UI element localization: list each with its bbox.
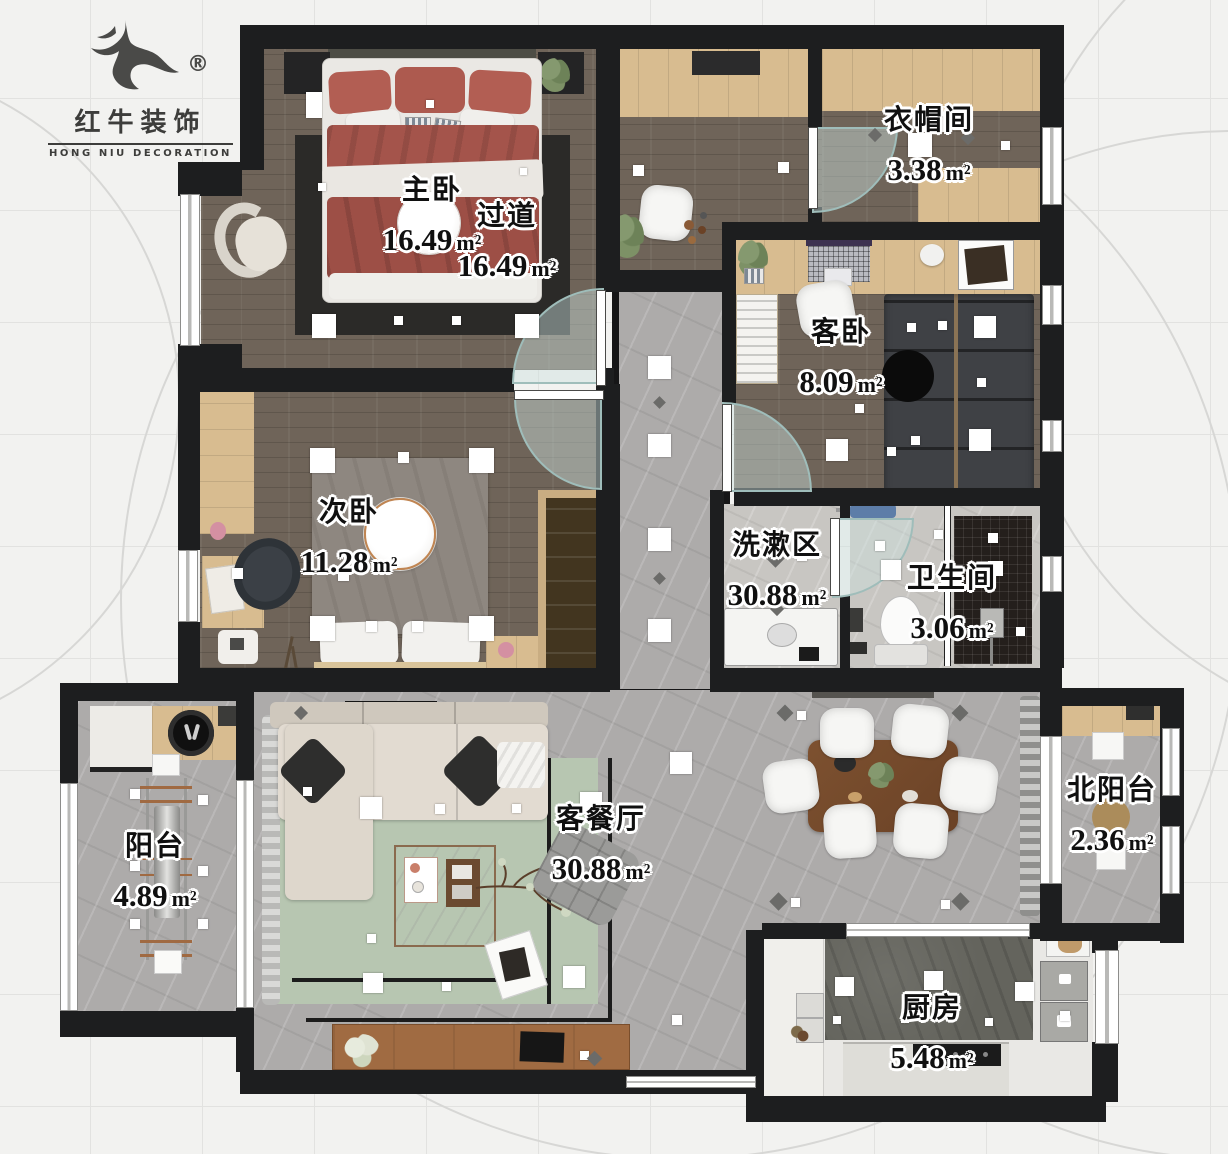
downlight <box>412 621 423 632</box>
door-leaf <box>808 127 818 209</box>
stove-knob <box>983 1052 988 1057</box>
room-area: 16.49m² <box>458 248 557 284</box>
downlight <box>435 804 445 814</box>
makeup-item <box>698 226 706 234</box>
box-item <box>452 865 472 879</box>
wardrobe-interior <box>546 498 596 678</box>
downlight <box>515 314 539 338</box>
downlight <box>198 919 208 929</box>
tv <box>519 1031 564 1063</box>
downlight <box>198 866 208 876</box>
downlight <box>312 314 336 338</box>
wall <box>596 49 620 289</box>
wall <box>60 683 78 783</box>
wall <box>236 700 254 780</box>
registered-mark: ® <box>187 52 209 77</box>
sink-unit <box>1040 1002 1088 1042</box>
downlight <box>974 316 996 338</box>
round-pillow <box>882 350 934 402</box>
wall <box>240 25 1062 49</box>
wall <box>178 392 200 550</box>
room-name: 卫生间 <box>907 556 997 596</box>
downlight <box>672 1015 682 1025</box>
downlight <box>977 378 986 387</box>
brand-logo: ® 红牛装饰 HONG NIU DECORATION <box>48 16 233 159</box>
downlight <box>398 452 409 463</box>
storage-box <box>154 950 182 974</box>
sink <box>767 623 797 647</box>
wall <box>178 344 242 370</box>
side-table <box>218 630 258 664</box>
room-area: 8.09m² <box>799 364 882 400</box>
shelf-item <box>1126 704 1154 720</box>
dining-chair <box>938 754 1001 815</box>
window <box>1040 736 1062 884</box>
wall <box>236 1008 254 1072</box>
door-leaf <box>722 404 732 492</box>
window <box>1042 285 1062 325</box>
downlight <box>941 900 950 909</box>
downlight <box>934 530 943 539</box>
tv-panel <box>692 51 760 75</box>
bull-logo-icon <box>81 16 201 100</box>
drying-bar <box>140 786 192 789</box>
photo-frame <box>958 240 1014 290</box>
box-item <box>452 885 472 899</box>
table-plant <box>868 762 894 788</box>
downlight <box>875 541 885 551</box>
dining-chair <box>889 702 950 760</box>
dining-chair <box>820 708 874 758</box>
window <box>1095 950 1119 1044</box>
wall <box>1160 688 1184 943</box>
dining-chair <box>892 802 951 861</box>
brand-name-en: HONG NIU DECORATION <box>48 148 233 159</box>
downlight <box>469 616 494 641</box>
window <box>1042 420 1062 452</box>
room-area: 4.89m² <box>113 878 196 914</box>
kitchen-plant <box>788 1022 818 1050</box>
window <box>180 194 200 346</box>
downlight <box>367 934 376 943</box>
room-name: 阳台 <box>113 824 196 864</box>
downlight <box>833 1016 841 1024</box>
downlight <box>648 528 671 551</box>
downlight <box>1060 1011 1070 1021</box>
wall <box>710 668 1062 692</box>
bookshelf <box>736 294 778 384</box>
downlight <box>985 1018 993 1026</box>
window <box>236 780 254 1008</box>
downlight <box>232 568 243 579</box>
wall <box>746 1096 1106 1122</box>
dining-chair <box>822 802 878 859</box>
wall <box>746 930 764 1120</box>
room-label-balcony: 阳台 4.89m² <box>113 824 196 914</box>
window <box>846 923 1030 937</box>
wall <box>840 596 850 668</box>
wall <box>1040 884 1062 926</box>
tray-dish <box>410 863 420 873</box>
pink-lamp <box>210 522 226 540</box>
downlight <box>881 560 901 580</box>
door-leaf <box>830 518 840 596</box>
wall <box>1092 1042 1118 1102</box>
white-throw <box>497 742 545 788</box>
wall-shelf <box>812 692 934 698</box>
pillow <box>328 69 392 114</box>
room-area: 3.38m² <box>884 152 974 188</box>
downlight <box>648 434 671 457</box>
wall <box>178 368 514 392</box>
faucet <box>850 504 896 518</box>
room-label-living-dining: 客餐厅 30.88m² <box>552 797 651 887</box>
table-dish <box>848 792 862 802</box>
room-area: 3.06m² <box>907 610 997 646</box>
room-label-guest-bedroom: 客卧 8.09m² <box>799 310 882 400</box>
window <box>178 550 198 622</box>
room-label-north-balcony: 北阳台 2.36m² <box>1067 768 1157 858</box>
pink-lamp <box>498 642 514 658</box>
downlight <box>835 977 854 996</box>
wall <box>734 222 1062 240</box>
room-area: 5.48m² <box>890 1040 973 1076</box>
room-name: 客卧 <box>799 310 882 350</box>
downlight <box>130 919 140 929</box>
downlight <box>887 447 896 456</box>
vanity <box>724 608 838 666</box>
dining-chair <box>761 756 822 815</box>
downlight <box>670 752 692 774</box>
downlight <box>310 448 335 473</box>
downlight <box>452 316 461 325</box>
sink-unit <box>1040 961 1088 1001</box>
downlight <box>648 356 671 379</box>
plant-pot <box>744 268 764 284</box>
downlight <box>360 797 382 819</box>
wall <box>240 25 264 170</box>
downlight <box>318 183 326 191</box>
wall <box>722 222 736 404</box>
window <box>1162 728 1180 796</box>
window <box>1162 826 1180 894</box>
washer-door <box>192 724 200 740</box>
storage-box <box>152 754 180 776</box>
downlight <box>394 316 403 325</box>
counter-item <box>799 647 819 661</box>
downlight <box>911 436 920 445</box>
room-area: 2.36m² <box>1067 822 1157 858</box>
downlight <box>797 711 806 720</box>
downlight <box>512 804 521 813</box>
downlight <box>426 100 434 108</box>
toilet-base <box>874 644 928 666</box>
brand-name-cn: 红牛装饰 <box>48 102 233 145</box>
door-leaf <box>596 290 606 386</box>
downlight <box>310 616 335 641</box>
downlight <box>563 966 585 988</box>
room-label-second-bedroom: 次卧 11.28m² <box>301 490 398 580</box>
downlight <box>1015 982 1034 1001</box>
floorplan-canvas: 主卧 16.49m² 过道 16.49m² 衣帽间 3.38m² 客卧 8.09… <box>0 0 1228 1154</box>
room-area: 11.28m² <box>301 544 398 580</box>
downlight <box>938 321 947 330</box>
corner-block <box>218 706 238 726</box>
wall <box>178 622 200 668</box>
sink-drain <box>1059 974 1071 984</box>
washing-machine <box>168 710 214 756</box>
tray-item <box>230 638 244 650</box>
wall <box>60 683 254 701</box>
downlight <box>907 323 916 332</box>
room-label-cloakroom: 衣帽间 3.38m² <box>884 98 974 188</box>
window <box>60 783 78 1011</box>
washer-door <box>184 724 192 740</box>
rug-border-line <box>306 1018 612 1022</box>
downlight <box>303 787 312 796</box>
plant <box>540 58 570 92</box>
downlight <box>969 429 991 451</box>
table-dish <box>902 790 918 802</box>
room-name: 洗漱区 <box>728 523 827 563</box>
passage-opening <box>626 1076 756 1088</box>
wardrobe <box>200 392 254 534</box>
door-leaf <box>514 390 604 400</box>
vanity-stool <box>637 183 694 242</box>
room-name: 次卧 <box>301 490 398 530</box>
downlight <box>130 789 140 799</box>
photo <box>964 245 1008 285</box>
downlight <box>469 448 494 473</box>
tray-dish <box>412 881 424 893</box>
downlight <box>1016 627 1025 636</box>
downlight <box>633 165 644 176</box>
wall <box>762 923 846 939</box>
downlight <box>520 168 527 175</box>
downlight <box>778 162 789 173</box>
makeup-item <box>684 220 694 230</box>
window <box>1042 556 1062 592</box>
curtain <box>1020 696 1040 916</box>
downlight <box>363 973 383 993</box>
wall <box>60 1011 254 1037</box>
room-name: 北阳台 <box>1067 768 1157 808</box>
room-area: 30.88m² <box>728 577 827 613</box>
drying-bar <box>140 940 192 943</box>
downlight <box>198 795 208 805</box>
makeup-item <box>688 236 696 244</box>
cabinet <box>90 706 152 772</box>
wall <box>178 162 242 196</box>
window <box>1042 127 1062 205</box>
room-area: 30.88m² <box>552 851 651 887</box>
wall <box>710 490 724 690</box>
room-label-bathroom: 卫生间 3.06m² <box>907 556 997 646</box>
open-wardrobe <box>538 490 604 686</box>
downlight <box>988 533 998 543</box>
room-name: 客餐厅 <box>552 797 651 837</box>
downlight <box>442 982 451 991</box>
downlight <box>648 619 671 642</box>
room-name: 厨房 <box>890 986 973 1026</box>
storage-box <box>1092 732 1124 760</box>
round-tray <box>920 244 944 266</box>
wall <box>1040 688 1062 736</box>
wall <box>604 270 736 292</box>
magazine <box>499 947 531 982</box>
downlight <box>791 898 800 907</box>
room-label-washing-area: 洗漱区 30.88m² <box>728 523 827 613</box>
wall <box>808 49 822 129</box>
drying-bar <box>140 800 192 803</box>
makeup-item <box>700 212 707 219</box>
room-name: 过道 <box>458 194 557 234</box>
downlight <box>366 621 377 632</box>
tray <box>404 857 438 903</box>
downlight <box>1001 141 1010 150</box>
downlight <box>826 439 848 461</box>
downlight <box>855 404 864 413</box>
room-name: 衣帽间 <box>884 98 974 138</box>
room-label-kitchen: 厨房 5.48m² <box>890 986 973 1076</box>
room-label-hallway: 过道 16.49m² <box>458 194 557 284</box>
flower-decor <box>344 1034 380 1068</box>
pillow <box>468 69 532 114</box>
